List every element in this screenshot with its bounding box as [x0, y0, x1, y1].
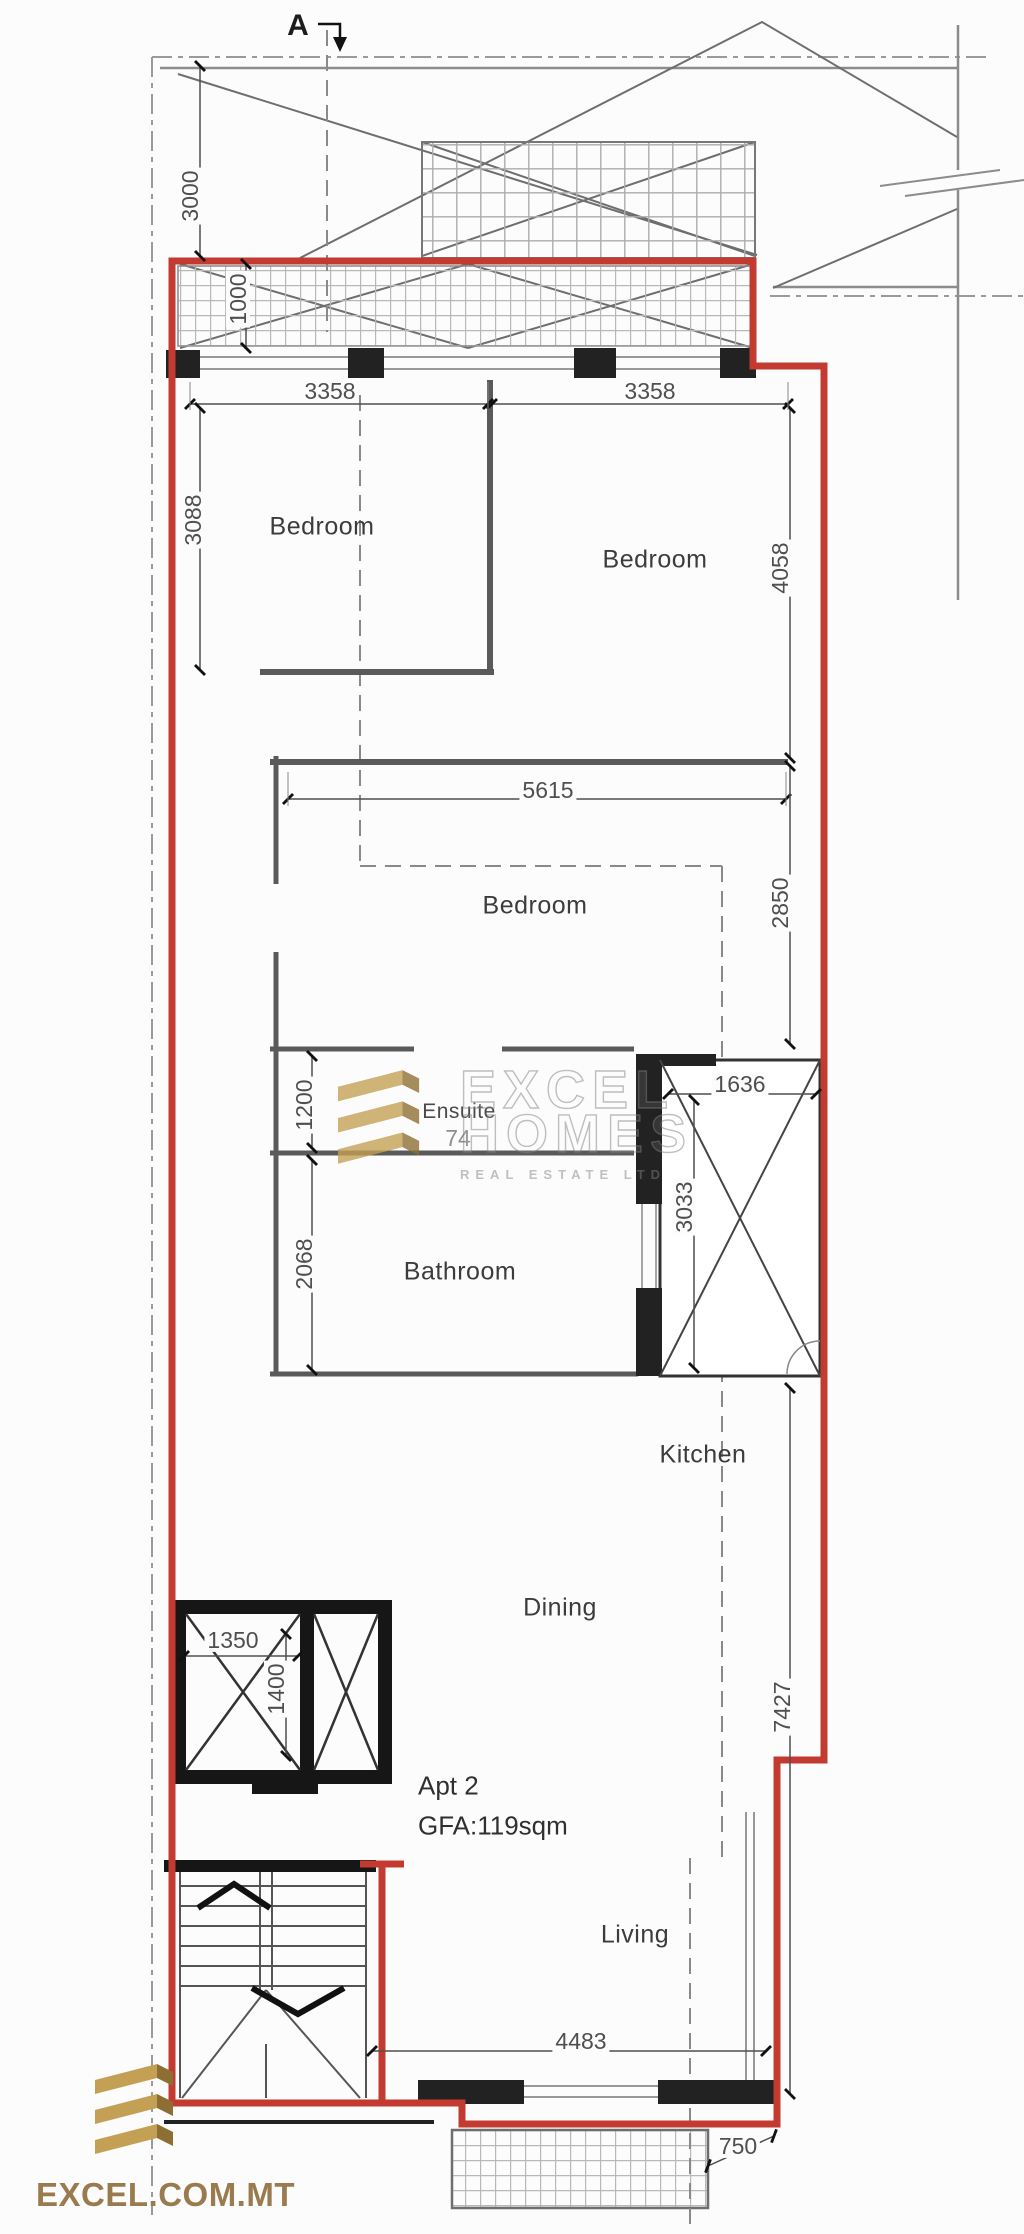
rear-balcony-hatch [452, 2130, 708, 2208]
watermark-line3: REAL ESTATE LTD [460, 1167, 693, 1182]
floor-plan-image: A Bedroom Bedroom Bedroom Ensuite Bathro… [0, 0, 1024, 2234]
apartment-gfa: GFA:119sqm [418, 1811, 568, 1842]
dim-ensuite-length: 1200 [292, 1076, 316, 1133]
dim-bedroom2-width: 3358 [621, 379, 678, 403]
dim-bedroom1-length: 3088 [181, 491, 205, 548]
dim-shaft-width: 1636 [711, 1072, 768, 1096]
dim-living-zone-length: 7427 [770, 1678, 794, 1735]
dim-rear-balcony-depth: 750 [716, 2134, 760, 2158]
dim-shaft-length: 3033 [672, 1178, 696, 1235]
dim-front-setback: 3000 [178, 167, 202, 224]
roof-terrace-hatch [422, 142, 755, 258]
room-label-kitchen: Kitchen [660, 1441, 747, 1470]
watermark: EXCEL HOMES REAL ESTATE LTD [338, 1066, 693, 1182]
section-marker-label: A [287, 9, 309, 43]
dim-living-width: 4483 [552, 2029, 609, 2053]
excel-homes-logo-icon [338, 1066, 442, 1170]
room-label-bathroom: Bathroom [404, 1258, 516, 1287]
excel-footer-logo-icon [95, 2062, 195, 2158]
section-arrow-icon [318, 24, 347, 52]
dim-bedroom2-length: 4058 [768, 539, 792, 596]
front-wall [166, 346, 756, 378]
dim-lift-width: 1350 [204, 1628, 261, 1652]
dim-bathroom-length: 2068 [292, 1235, 316, 1292]
rear-wall [418, 1812, 774, 2104]
dim-front-terrace-depth: 1000 [226, 270, 250, 327]
room-label-living: Living [601, 1921, 669, 1950]
brand-website: EXCEL.COM.MT [36, 2176, 295, 2214]
dim-bedroom1-width: 3358 [301, 379, 358, 403]
room-label-dining: Dining [523, 1594, 597, 1623]
room-label-bedroom3: Bedroom [483, 892, 588, 921]
room-label-bedroom1: Bedroom [270, 513, 375, 542]
apartment-name: Apt 2 [418, 1771, 479, 1802]
dim-lift-length: 1400 [264, 1660, 288, 1717]
watermark-line2: HOMES [460, 1112, 693, 1156]
room-label-bedroom2: Bedroom [603, 546, 708, 575]
front-terrace-hatch [178, 266, 753, 346]
staircase [164, 1860, 434, 2122]
dim-bedroom3-length: 2850 [768, 874, 792, 931]
dim-bedroom3-width: 5615 [519, 778, 576, 802]
